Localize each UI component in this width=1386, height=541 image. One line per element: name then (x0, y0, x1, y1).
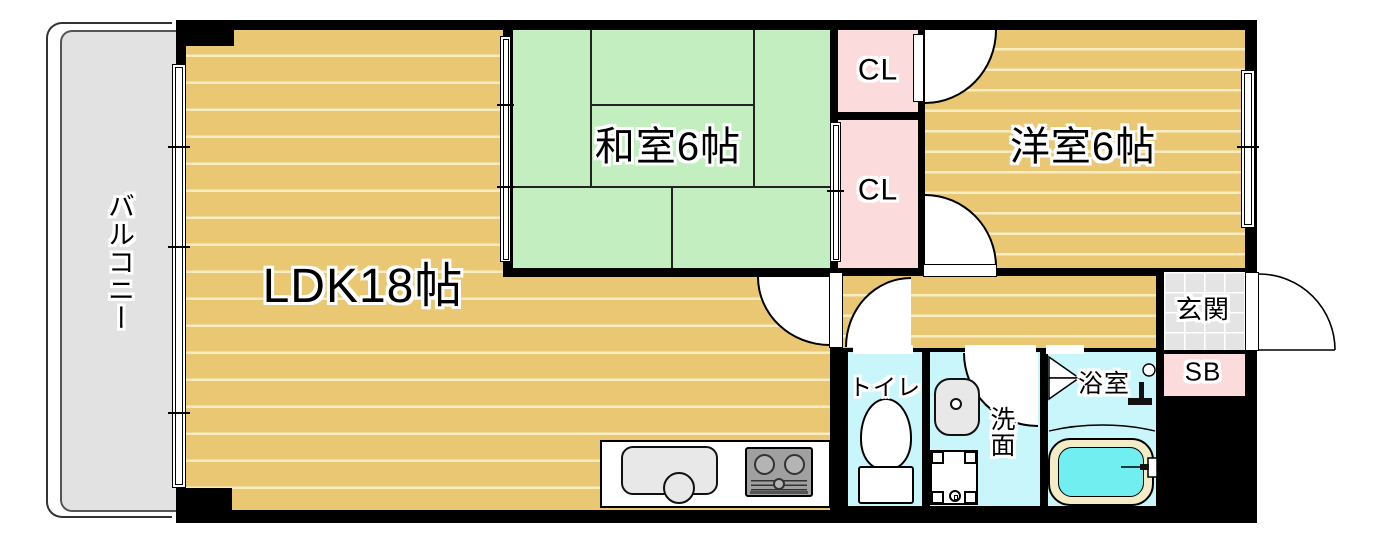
stove-icon (745, 447, 813, 497)
toilet-tank-icon (858, 466, 914, 504)
window-tick (168, 146, 190, 148)
corner-block-bottomleft (176, 488, 232, 523)
entrance-door-arc (1259, 274, 1335, 350)
window-western-room (1241, 70, 1255, 228)
window-tick (168, 412, 190, 414)
label-ldk: LDK18帖 (263, 262, 464, 312)
stove-burner-icon (754, 454, 775, 475)
label-balcony: バルコニー (105, 192, 133, 332)
sliding-door-japanese-room (500, 36, 511, 262)
washer-pan-icon (930, 450, 978, 505)
label-closet-upper: CL (858, 54, 898, 85)
label-western-room: 洋室6帖 (1010, 127, 1156, 169)
washer-pan-corner (931, 491, 944, 504)
door-gap-toilet (853, 345, 913, 354)
door-gap-bathroom (1046, 345, 1084, 354)
washer-pan-corner (931, 451, 944, 464)
stove-burner-icon (784, 454, 805, 475)
label-entrance: 玄関 (1176, 296, 1230, 323)
slider-tick (497, 104, 514, 106)
corner-block-topleft (176, 20, 234, 46)
sliding-door-closet-lower (830, 122, 841, 262)
tatami-seam (590, 104, 755, 106)
window-tick (1237, 146, 1259, 148)
tatami-seam (590, 30, 592, 188)
slider-tick (827, 190, 844, 192)
window-tick (168, 246, 190, 248)
washer-drain-dot (954, 495, 958, 500)
door-leaf-ldk (829, 272, 843, 348)
window-balcony (172, 64, 186, 488)
bathtub-water (1058, 447, 1144, 497)
door-leaf-western-room (923, 264, 997, 277)
label-shoe-box: SB (1185, 358, 1222, 385)
wall-washitsu-bottom (503, 268, 830, 277)
tatami-seam (671, 186, 673, 268)
door-leaf-closet-upper (913, 34, 924, 102)
washer-pan-corner (964, 451, 977, 464)
stove-knob-icon (773, 478, 785, 490)
label-bathroom: 浴室 (1078, 371, 1130, 397)
label-toilet: トイレ (849, 376, 921, 400)
kitchen-sink-drain-icon (663, 472, 695, 504)
toilet-bowl-icon (860, 398, 912, 470)
stove-tray-icon (750, 491, 808, 494)
label-washroom: 洗面 (988, 406, 1014, 458)
floorplan: バルコニー LDK18帖 和室6帖 洋室6帖 CL CL 玄関 SB トイレ 洗… (0, 0, 1386, 541)
door-gap-washroom (965, 345, 1036, 354)
tatami-seam (753, 30, 755, 188)
label-closet-lower: CL (858, 174, 898, 205)
entrance-door-leaf (1245, 272, 1259, 351)
entrance-step-edge (1156, 272, 1164, 350)
washbasin-drain-icon (950, 398, 962, 410)
slider-tick (497, 186, 514, 188)
label-japanese-room: 和室6帖 (595, 127, 741, 169)
washer-pan-corner (964, 491, 977, 504)
